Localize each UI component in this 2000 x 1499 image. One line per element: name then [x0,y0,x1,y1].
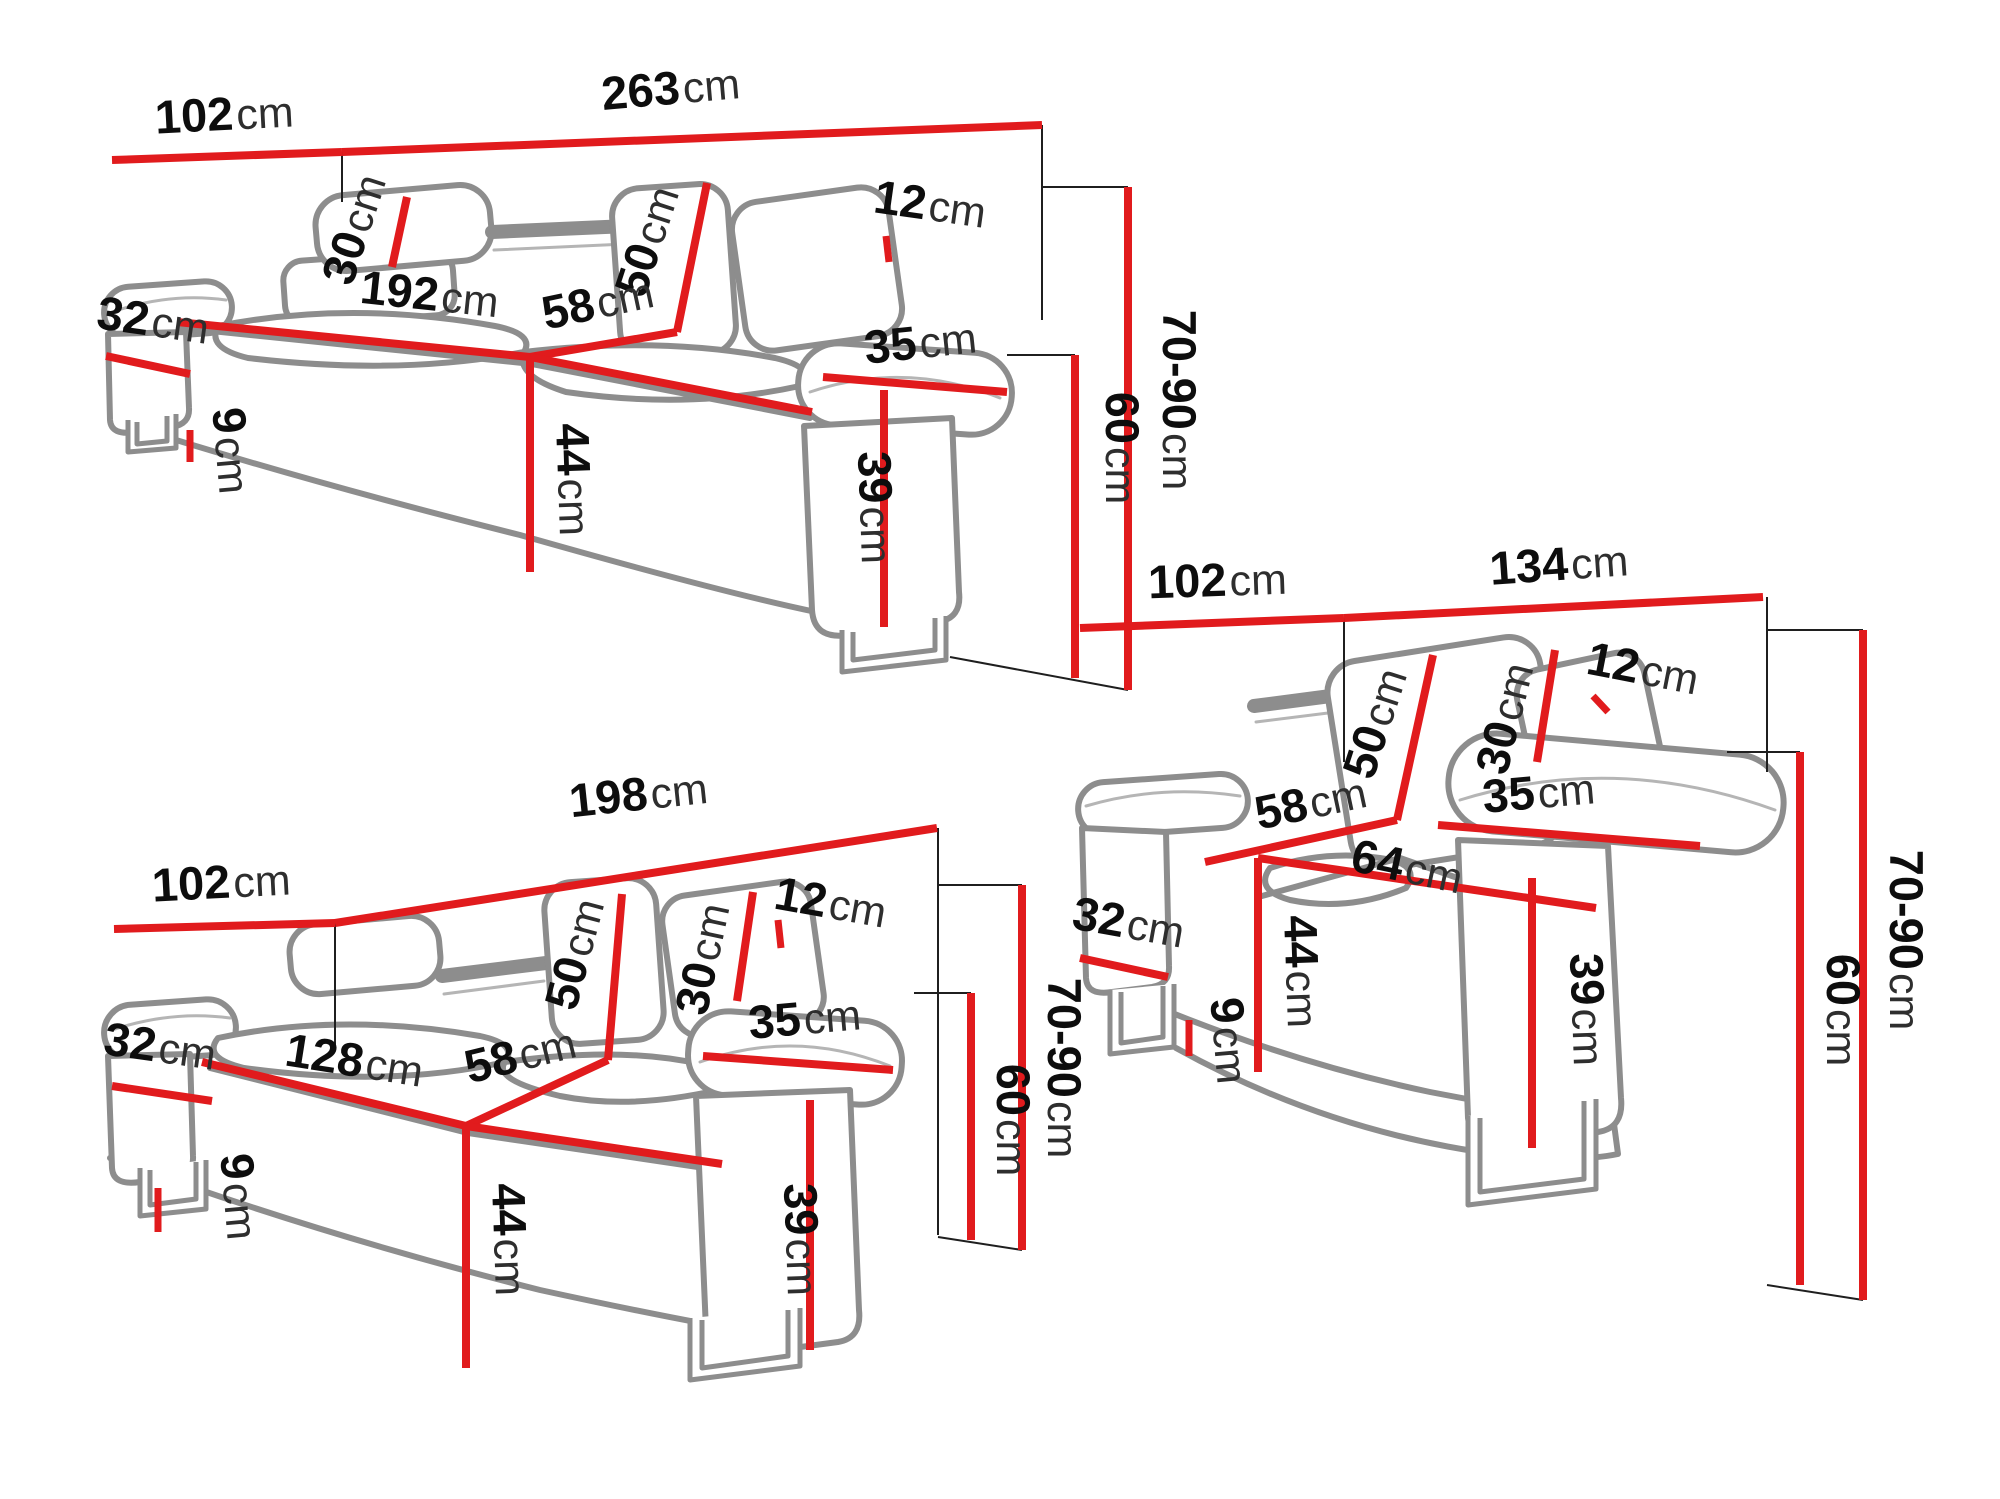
dim-line-front-edge [466,1126,722,1164]
lowered-headrest-bar-shadow [444,981,544,994]
dimension-labels: 102cm 263cm 12cm 30cm 50cm 192cm 58cm 35… [94,55,1206,565]
dim-label-armrest-height: 39cm [1560,952,1617,1066]
lowered-headrest-bar [442,963,546,976]
dim-line-width [1344,597,1763,618]
dim-line-depth [112,152,342,160]
dim-label-seat-height: 44cm [546,422,603,536]
lowered-headrest-bar-shadow [494,244,626,250]
figure-three-seater-sofa: 102cm 263cm 12cm 30cm 50cm 192cm 58cm 35… [94,55,1206,690]
dim-label-back-height: 60cm [1817,954,1870,1067]
left-leg-inner [1121,986,1163,1043]
dim-label-back-height: 60cm [1096,392,1149,505]
dim-label-depth: 102cm [150,851,291,911]
dim-line-width [342,125,1042,152]
dim-label-legs: 9cm [210,1151,270,1242]
dim-label-armrest-top: 35cm [746,986,863,1049]
dim-label-width: 198cm [567,760,711,827]
figure-two-seater-sofa: 102cm 198cm 12cm 50cm 30cm 128cm 58cm 35… [101,760,1091,1380]
lowered-headrest-bar [492,226,628,232]
right-leg-inner [702,1310,788,1368]
dim-label-height: 70-90cm [1153,310,1206,491]
dim-label-height: 70-90cm [1880,850,1933,1031]
figure-armchair: 102cm 134cm 12cm 50cm 30cm 58cm 64cm 35c… [1069,532,1933,1300]
dim-label-height: 70-90cm [1038,978,1091,1159]
dim-label-seat-height: 44cm [1274,914,1331,1028]
ref-height-bottom [938,1237,1022,1250]
dim-label-width: 263cm [599,55,742,120]
ref-height-bottom [950,657,1128,690]
dim-label-armrest-top: 35cm [1480,760,1597,823]
dim-tick-headrest [886,236,889,262]
dim-line-depth [1080,618,1344,628]
dim-label-depth: 102cm [1147,551,1288,609]
diagram-canvas: 102cm 263cm 12cm 30cm 50cm 192cm 58cm 35… [0,0,2000,1499]
dim-label-back-height: 60cm [987,1064,1040,1177]
dim-label-armrest-height: 39cm [774,1182,831,1296]
dim-label-legs: 9cm [202,405,262,496]
dim-tick-headrest [778,920,781,948]
dim-label-legs: 9cm [1200,995,1260,1086]
dim-label-seat-height: 44cm [482,1182,539,1296]
furniture-dimensions-diagram: 102cm 263cm 12cm 30cm 50cm 192cm 58cm 35… [0,0,2000,1499]
dim-label-depth: 102cm [153,83,294,143]
ref-height-bottom [1767,1285,1863,1300]
dim-label-armrest-height: 39cm [848,450,905,564]
dim-label-width: 134cm [1488,532,1630,595]
